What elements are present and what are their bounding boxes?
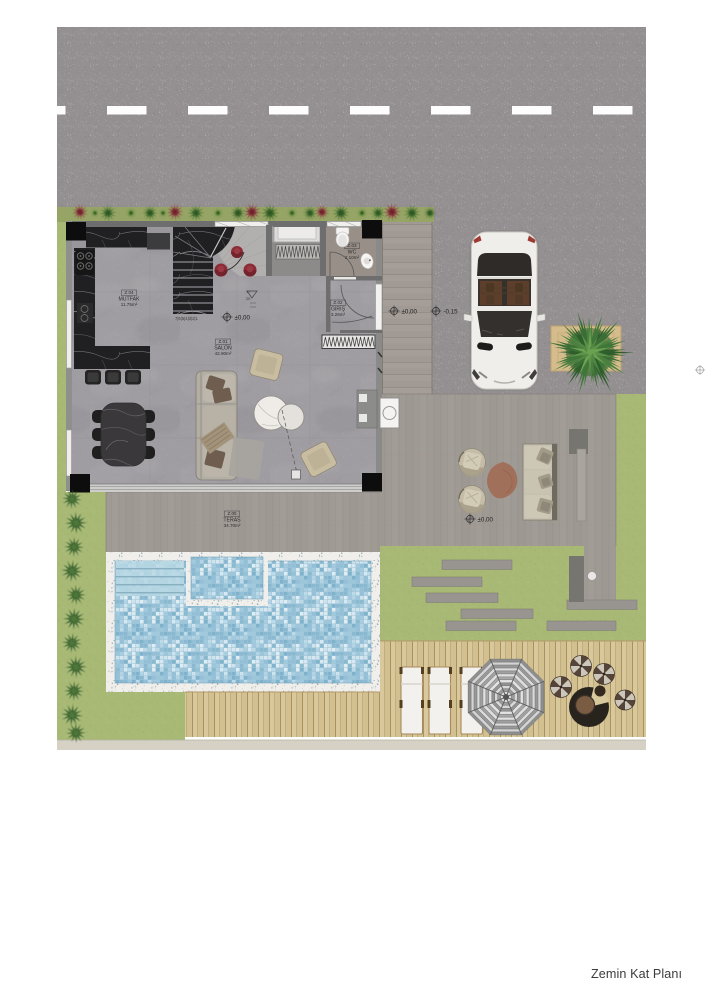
svg-text:17: 17 (246, 290, 250, 294)
svg-text:Zemin Kat Planı: Zemin Kat Planı (591, 967, 682, 981)
svg-text:Z.03: Z.03 (347, 243, 357, 248)
svg-text:Z.05: Z.05 (227, 511, 237, 516)
svg-text:Z.02: Z.02 (333, 300, 343, 305)
svg-text:±0,00: ±0,00 (235, 314, 251, 321)
svg-text:11.75m²: 11.75m² (121, 302, 138, 307)
svg-text:3.26m²: 3.26m² (331, 312, 346, 317)
svg-text:±0,00: ±0,00 (402, 308, 418, 315)
svg-text:-0,15: -0,15 (444, 308, 459, 315)
svg-text:2.10m²: 2.10m² (345, 255, 360, 260)
svg-text:34.70m²: 34.70m² (224, 523, 241, 528)
svg-text:Z.01: Z.01 (218, 339, 228, 344)
svg-text:±0,00: ±0,00 (478, 516, 494, 523)
svg-text:20: 20 (246, 297, 250, 301)
svg-text:7|6|5|4|3|2|1: 7|6|5|4|3|2|1 (175, 316, 198, 321)
svg-text:Z.04: Z.04 (124, 290, 134, 295)
svg-text:42.90m²: 42.90m² (215, 351, 232, 356)
